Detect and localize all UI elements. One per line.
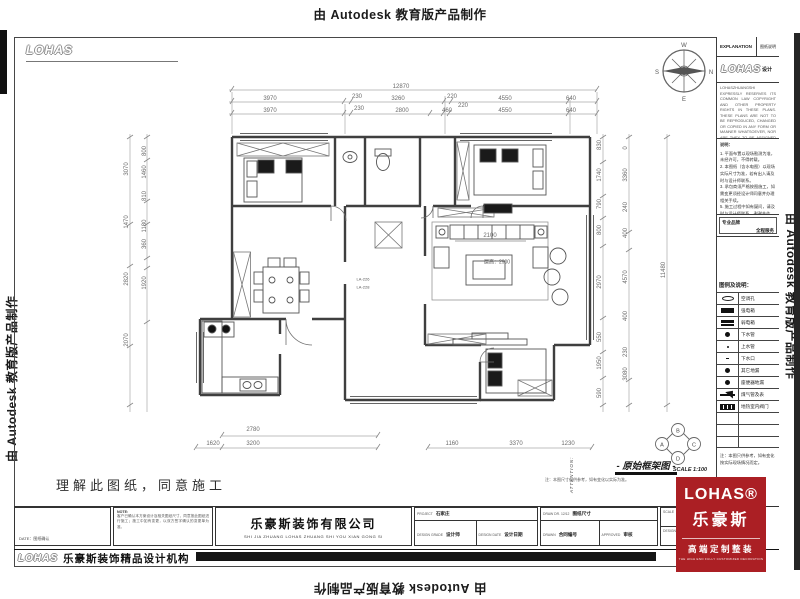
- legend-label: 弱电箱: [739, 320, 755, 326]
- supply-pipe-icon: [727, 346, 729, 348]
- dimension-label: 400: [623, 228, 629, 238]
- drawn-value: 合同编号: [559, 532, 577, 537]
- dimension-label: 230: [354, 106, 364, 112]
- legend-label: 座便器地漏: [739, 380, 764, 386]
- lowvolt-box-icon: [721, 320, 734, 326]
- date-note: DATE：图纸确认: [19, 536, 49, 542]
- red-logo-tagline: 高端定制整装: [682, 538, 760, 555]
- legend-row: 座便器地漏: [717, 376, 779, 388]
- legend-label: 上水管: [739, 344, 755, 350]
- dimension-label: 1460: [142, 165, 148, 178]
- legend-label: 强电箱: [739, 308, 755, 314]
- legend-label: 地热室内阀门: [739, 404, 769, 410]
- dimension-label: 4550: [498, 108, 511, 114]
- dimension-label: 1180: [142, 220, 148, 233]
- confirm-text: 理解此图纸，同意施工: [56, 475, 226, 494]
- red-logo-tagline-en: THE HIGH END FULLY CUSTOMIZED DECORATION: [676, 557, 766, 561]
- dimension-label: 3970: [263, 108, 276, 114]
- dimension-label: 400: [623, 311, 629, 321]
- lohas-footer-logo: LOHAS: [18, 553, 58, 564]
- design-date-label: DESIGN DATE: [479, 533, 502, 537]
- draw-field-box: DRAW DR. 12/12 图纸尺寸 DRAWN合同编号 APPROVED审核: [540, 507, 658, 546]
- red-logo-brand-cn: 乐豪斯: [676, 506, 766, 530]
- elev-bottom-label: D: [676, 457, 680, 463]
- dimension-label: 0: [623, 146, 629, 149]
- dimension-label: 3200: [246, 441, 259, 447]
- dimension-label: 640: [566, 108, 576, 114]
- dimension-label: 4570: [623, 270, 629, 283]
- lohas-logo-text: LOHAS: [721, 64, 761, 75]
- legend-label: 空调孔: [739, 296, 755, 302]
- dimension-label: 3360: [623, 168, 629, 181]
- elev-right-label: C: [692, 443, 696, 449]
- dimension-label: 220: [458, 103, 468, 109]
- legend-row: 空调孔: [717, 292, 779, 304]
- note-item: 5. 施工过程中如有疑问，请及时与设计师联系，谢谢合作。: [720, 204, 776, 215]
- floor-drain-icon: [725, 368, 730, 373]
- explanation-label: EXPLANATION: [717, 44, 756, 49]
- dimension-label: 550: [597, 332, 603, 342]
- note-box: NOTE: 客户已确认本方案设计及相关图纸尺寸，同意按此图纸进行施工；施工中如有…: [113, 507, 213, 546]
- project-value: 石家庄: [436, 511, 450, 517]
- elev-left-label: A: [660, 443, 664, 449]
- compass-top-label: W: [681, 43, 687, 49]
- legend-row: 其它地漏: [717, 364, 779, 376]
- drawing-description-label: 图纸说明: [756, 37, 779, 56]
- panel-logo: LOHAS 设计: [717, 57, 779, 83]
- drawn-label: DRAWN: [543, 533, 556, 537]
- legend-label: 煤气管及表: [739, 392, 764, 398]
- service-label: 全程服务: [722, 227, 774, 235]
- legend-row: 上水管: [717, 340, 779, 352]
- footer-brand-text: 乐豪斯装饰精品设计机构: [63, 551, 190, 566]
- legend-row: 下水口: [717, 352, 779, 364]
- compass-bottom-label: E: [682, 97, 686, 103]
- brand-label: 专业品牌: [722, 219, 774, 227]
- panel-header: EXPLANATION 图纸说明: [717, 37, 779, 57]
- dimension-label: 230: [623, 347, 629, 357]
- date-confirm-box: DATE：图纸确认: [14, 507, 111, 546]
- gas-pipe-icon: [720, 394, 735, 396]
- fixture-label: LA-228: [357, 285, 370, 290]
- hatched-elements: [234, 142, 553, 396]
- panel-spacer: [717, 237, 779, 279]
- company-name-pinyin: SHI JIA ZHUANG LOHAS ZHUANG SHI YOU XIAN…: [216, 534, 411, 539]
- power-box-icon: [721, 308, 734, 313]
- dimension-label: 230: [352, 94, 362, 100]
- legend-row: 弱电箱: [717, 316, 779, 328]
- note-text: 客户已确认本方案设计及相关图纸尺寸，同意按此图纸进行施工；施工中如有变更，以双方…: [117, 514, 209, 530]
- legend-row-empty: [717, 412, 779, 424]
- legend-label: 下水口: [739, 356, 755, 362]
- footer-black-bar: [196, 552, 656, 561]
- dimension-label: 590: [597, 388, 603, 398]
- note-item: 3. 承包商须严格按图施工，如需变更须经设计师同意并办理相关手续。: [720, 184, 776, 204]
- furniture: [202, 145, 568, 393]
- compass-right-label: N: [709, 70, 713, 76]
- copyright-paragraph: LOHASZHUANGSHI EXPRESSLY RESERVES ITS CO…: [717, 83, 779, 139]
- dimension-label: 790: [597, 199, 603, 209]
- draw-label: DRAW DR. 12/12: [543, 512, 569, 516]
- dimension-label: 4550: [498, 96, 511, 102]
- design-grade-value: 设计师: [446, 532, 460, 537]
- dimension-label: 2070: [124, 333, 130, 346]
- aircon-hole-icon: [722, 296, 734, 301]
- compass-icon: [663, 50, 705, 92]
- legend-row-empty: [717, 436, 779, 448]
- project-label: PROJECT: [417, 512, 433, 516]
- dimension-label: 1620: [206, 441, 219, 447]
- red-logo-brand: LOHAS®: [676, 486, 766, 504]
- dimension-label: 1920: [142, 276, 148, 289]
- legend-label: 下水管: [739, 332, 755, 338]
- title-underline: [615, 472, 677, 475]
- dimension-label: 460: [442, 108, 452, 114]
- heating-valve-icon: [720, 404, 735, 410]
- notes-title: 说明：: [720, 142, 776, 149]
- design-date-value: 设计日期: [504, 532, 522, 537]
- elev-top-label: B: [676, 429, 680, 435]
- compass-left-label: S: [655, 70, 659, 76]
- ceiling-height-label: 层高：2900: [484, 259, 510, 266]
- dimension-label: 3080: [623, 367, 629, 380]
- approved-value: 审核: [623, 532, 632, 537]
- dimension-label: 240: [623, 202, 629, 212]
- brand-service-box: 专业品牌 全程服务: [717, 215, 779, 237]
- legend-row: 下水管: [717, 328, 779, 340]
- dimension-label: 2780: [246, 427, 259, 433]
- attention-label: ATTENTION:: [569, 457, 574, 493]
- legend-label: 其它地漏: [739, 368, 759, 374]
- toilet-drain-icon: [725, 380, 730, 385]
- logo-suffix: 设计: [762, 66, 772, 73]
- walls: [200, 137, 590, 400]
- legend-title: 图例及说明：: [717, 279, 779, 292]
- dimension-label: 3070: [124, 162, 130, 175]
- drawing-title: - 原始框架图 -: [616, 458, 675, 472]
- dimension-label: 360: [142, 239, 148, 249]
- dimension-label: 800: [597, 225, 603, 235]
- company-box: 乐豪斯装饰有限公司 SHI JIA ZHUANG LOHAS ZHUANG SH…: [215, 507, 412, 546]
- title-note: 注：本图尺寸仅供参考，如有变化以实际为准。: [545, 477, 629, 483]
- dimension-label: 11480: [661, 262, 667, 278]
- dimension-label: 1230: [561, 441, 574, 447]
- dimension-label: 1160: [446, 441, 459, 447]
- note-item: 2. 本图纸（含水电图）以现场实际尺寸为准，若有出入请及时与设计师联系。: [720, 164, 776, 184]
- legend-row: 煤气管及表: [717, 388, 779, 400]
- fixture-label: LA-226: [357, 277, 370, 282]
- dimension-label: 830: [597, 140, 603, 150]
- sofa-dimension-label: 2100: [483, 233, 496, 239]
- dimension-label: 2800: [395, 108, 408, 114]
- dimension-label: 2970: [597, 275, 603, 288]
- dimension-label: 1470: [124, 215, 130, 228]
- dimension-label: 640: [566, 96, 576, 102]
- drain-outlet-icon: [726, 358, 729, 360]
- dimension-label: 1950: [597, 356, 603, 369]
- draw-value: 图纸尺寸: [572, 511, 590, 517]
- dimension-label: 2820: [124, 272, 130, 285]
- lohas-red-logo: LOHAS® 乐豪斯 高端定制整装 THE HIGH END FULLY CUS…: [676, 477, 766, 572]
- legend-table: 图例及说明： 空调孔 强电箱 弱电箱 下水管 上水管 下水口 其它地漏 座便器地…: [717, 279, 779, 448]
- scale-label: SCALE 1:100: [673, 467, 707, 473]
- dimension-label: 3970: [263, 96, 276, 102]
- legend-row-empty: [717, 424, 779, 436]
- dimension-label: 1740: [597, 168, 603, 181]
- dimension-label: 800: [142, 146, 148, 156]
- legend-note: 注：本图只供参考，如有变化按实际现场情况而定。: [717, 448, 779, 476]
- note-item: 1. 平面布置以现场勘测为准，未经许可，不得转载。: [720, 151, 776, 164]
- legend-row: 强电箱: [717, 304, 779, 316]
- dimension-label: 3370: [509, 441, 522, 447]
- windows: [197, 134, 594, 404]
- dimension-label: 810: [142, 191, 148, 201]
- dimension-label: 220: [447, 94, 457, 100]
- dimension-label: 3260: [391, 96, 404, 102]
- notes-section: 说明： 1. 平面布置以现场勘测为准，未经许可，不得转载。 2. 本图纸（含水电…: [717, 139, 779, 215]
- approved-label: APPROVED: [602, 533, 621, 537]
- company-name: 乐豪斯装饰有限公司: [216, 515, 411, 532]
- design-grade-label: DESIGN GRADE: [417, 533, 443, 537]
- legend-row: 地热室内阀门: [717, 400, 779, 412]
- dimension-label: 12870: [393, 84, 410, 90]
- drain-pipe-icon: [725, 332, 730, 337]
- project-field-box: PROJECT 石家庄 DESIGN GRADE设计师 DESIGN DATE设…: [414, 507, 538, 546]
